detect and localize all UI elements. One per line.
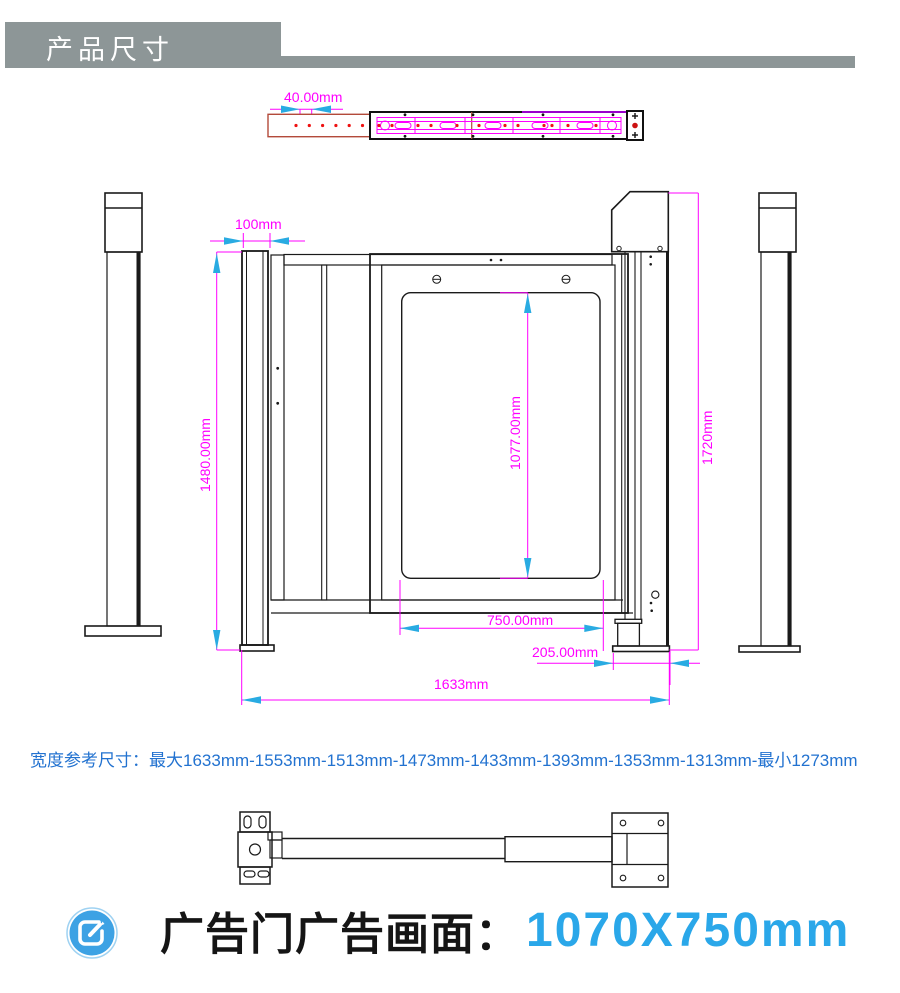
drive-housing	[612, 192, 669, 252]
front-view-drawing	[80, 185, 805, 710]
right-frame-column	[625, 252, 668, 646]
footer-label: 广告门广告画面：	[160, 898, 520, 962]
arm-right-plate	[612, 813, 668, 887]
edit-icon	[66, 907, 118, 959]
dim-post-width-label: 100mm	[235, 217, 282, 231]
left-post	[85, 193, 161, 636]
swing-arm-drawing	[235, 800, 675, 900]
arm-bar	[282, 837, 612, 862]
right-post	[739, 193, 800, 652]
dim-1480-lines	[217, 252, 242, 650]
dim-1720-lines	[668, 193, 698, 650]
page-title: 产品尺寸	[46, 28, 174, 67]
dim-door-height-label: 1480.00mm	[198, 418, 212, 492]
dim-ad-window-height-label: 1077.00mm	[508, 396, 522, 470]
door-leaf-frame	[271, 255, 633, 614]
footer-row: 广告门广告画面： 1070X750mm	[66, 898, 850, 962]
hinge-column	[240, 251, 274, 651]
footer-size-value: 1070X750mm	[526, 903, 850, 958]
dim-base-width-label: 205.00mm	[532, 645, 598, 659]
hinge-strip	[271, 255, 284, 600]
beam-end-cap	[627, 111, 643, 140]
dim-ad-window-width-label: 750.00mm	[487, 613, 553, 627]
width-reference-label: 宽度参考尺寸：	[30, 751, 149, 770]
page: 产品尺寸	[0, 0, 900, 993]
pedestal	[613, 619, 670, 651]
ad-panel-frame	[370, 254, 628, 613]
arm-left-bracket	[238, 812, 282, 884]
beam-left-section	[268, 114, 372, 136]
header-banner-tail	[281, 56, 855, 68]
width-reference-line: 宽度参考尺寸：最大1633mm-1553mm-1513mm-1473mm-143…	[30, 746, 890, 771]
dim-overall-width-label: 1633mm	[434, 677, 488, 691]
dim-top-pitch-label: 40.00mm	[284, 90, 342, 104]
dim-machine-height-label: 1720mm	[700, 411, 714, 465]
beam-main-section	[370, 112, 627, 139]
width-reference-value: 最大1633mm-1553mm-1513mm-1473mm-1433mm-139…	[149, 751, 858, 770]
